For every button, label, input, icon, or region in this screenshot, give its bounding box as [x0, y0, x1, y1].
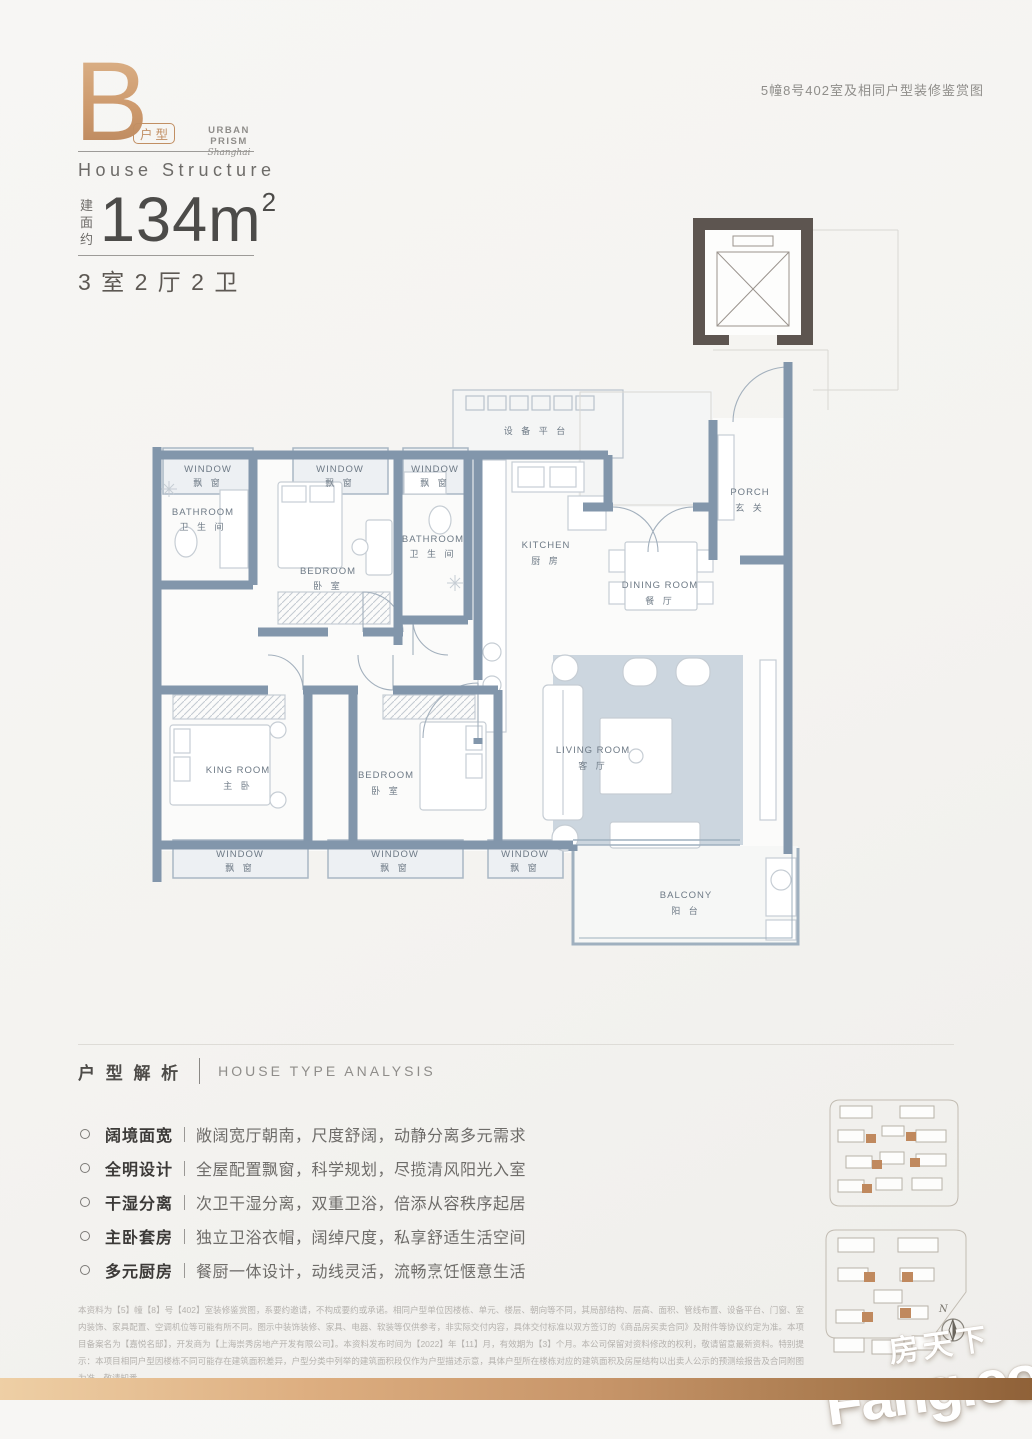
king-room-label-cn: 主 卧 — [223, 780, 253, 791]
floor-plan: 设 备 平 台 — [128, 190, 908, 980]
house-type-tag: 户型 — [133, 123, 175, 144]
window-bottom1-label-en: WINDOW — [216, 849, 264, 860]
analysis-item: 主卧套房 独立卫浴衣帽，阔绰尺度，私享舒适生活空间 — [80, 1224, 526, 1248]
analysis-item-label: 阔境面宽 — [105, 1122, 173, 1146]
analysis-item-separator — [184, 1263, 185, 1278]
window-bottom3-label-en: WINDOW — [501, 849, 549, 860]
analysis-item-desc: 次卫干湿分离，双重卫浴，倍添从容秩序起居 — [196, 1190, 526, 1214]
bullet-icon — [80, 1129, 90, 1139]
analysis-item-separator — [184, 1127, 185, 1142]
living-room-label-cn: 客 厅 — [578, 760, 608, 771]
analysis-item-separator — [184, 1195, 185, 1210]
dining-label-cn: 餐 厅 — [645, 595, 675, 606]
window-top2-label-cn: 飘 窗 — [325, 477, 355, 488]
analysis-item-label: 多元厨房 — [105, 1258, 173, 1282]
kitchen-label-en: KITCHEN — [522, 540, 571, 551]
window-bottom3-label-cn: 飘 窗 — [510, 862, 540, 873]
bullet-icon — [80, 1197, 90, 1207]
window-bottom1-label-cn: 飘 窗 — [225, 862, 255, 873]
analysis-item: 干湿分离 次卫干湿分离，双重卫浴，倍添从容秩序起居 — [80, 1190, 526, 1214]
equipment-platform-label: 设 备 平 台 — [504, 425, 569, 436]
site-plan-minimap-1 — [820, 1094, 968, 1221]
bedroom1-label-cn: 卧 室 — [313, 580, 343, 591]
window-bottom2-label-cn: 飘 窗 — [380, 862, 410, 873]
bullet-icon — [80, 1163, 90, 1173]
analysis-item: 多元厨房 餐厨一体设计，动线灵活，流畅烹饪惬意生活 — [80, 1258, 526, 1282]
porch-label-en: PORCH — [730, 487, 769, 498]
window-top2-label-en: WINDOW — [316, 464, 364, 475]
balcony-label-en: BALCONY — [660, 890, 712, 901]
analysis-header: 户 型 解 析 HOUSE TYPE ANALYSIS — [78, 1058, 436, 1084]
bedroom2-label-cn: 卧 室 — [371, 785, 401, 796]
analysis-title-en: HOUSE TYPE ANALYSIS — [218, 1063, 436, 1079]
analysis-title-divider — [199, 1058, 200, 1084]
brand-logo: URBAN PRISM Shanghai — [194, 125, 264, 158]
disclaimer-text: 本资料为【5】幢【8】号【402】室装修鉴赏图，系要约邀请，不构成要约或承诺。相… — [78, 1302, 804, 1387]
header-divider-top — [78, 151, 254, 152]
porch-label-cn: 玄 关 — [735, 502, 765, 513]
window-top3-label-en: WINDOW — [411, 464, 459, 475]
elevator — [693, 218, 813, 345]
bedroom1-label-en: BEDROOM — [300, 566, 356, 577]
top-right-note: 5幢8号402室及相同户型装修鉴赏图 — [761, 80, 984, 99]
kitchen-label-cn: 厨 房 — [531, 555, 561, 566]
analysis-item: 全明设计 全屋配置飘窗，科学规划，尽揽清风阳光入室 — [80, 1156, 526, 1180]
analysis-item-desc: 敞阔宽厅朝南，尺度舒阔，动静分离多元需求 — [196, 1122, 526, 1146]
analysis-item-label: 主卧套房 — [105, 1224, 173, 1248]
structure-title: House Structure — [78, 160, 276, 181]
window-top1-label-cn: 飘 窗 — [193, 477, 223, 488]
analysis-item-label: 全明设计 — [105, 1156, 173, 1180]
king-room-label-en: KING ROOM — [206, 765, 270, 776]
analysis-title-cn: 户 型 解 析 — [78, 1059, 181, 1084]
balcony-label-cn: 阳 台 — [671, 905, 701, 916]
compass-north-label: N — [939, 1304, 948, 1315]
bathroom1-label-en: BATHROOM — [172, 507, 234, 518]
living-room-label-en: LIVING ROOM — [556, 745, 630, 756]
floor-plan-svg: 设 备 平 台 — [128, 190, 908, 980]
bottom-gradient-bar — [0, 1378, 1032, 1400]
analysis-item-separator — [184, 1229, 185, 1244]
area-prefix: 建面约 — [80, 197, 95, 248]
bedroom2-label-en: BEDROOM — [358, 770, 414, 781]
analysis-item: 阔境面宽 敞阔宽厅朝南，尺度舒阔，动静分离多元需求 — [80, 1122, 526, 1146]
bathroom2-label-cn: 卫 生 间 — [409, 548, 456, 559]
window-top1-label-en: WINDOW — [184, 464, 232, 475]
analysis-item-desc: 独立卫浴衣帽，阔绰尺度，私享舒适生活空间 — [196, 1224, 526, 1248]
analysis-top-rule — [78, 1044, 954, 1045]
analysis-item-label: 干湿分离 — [105, 1190, 173, 1214]
bullet-icon — [80, 1265, 90, 1275]
brand-name: URBAN PRISM — [194, 125, 264, 147]
window-top3-label-cn: 飘 窗 — [420, 477, 450, 488]
bullet-icon — [80, 1231, 90, 1241]
dining-label-en: DINING ROOM — [622, 580, 698, 591]
analysis-item-separator — [184, 1161, 185, 1176]
brand-subname: Shanghai — [194, 148, 264, 158]
analysis-item-desc: 全屋配置飘窗，科学规划，尽揽清风阳光入室 — [196, 1156, 526, 1180]
window-bottom2-label-en: WINDOW — [371, 849, 419, 860]
bathroom1-label-cn: 卫 生 间 — [179, 521, 226, 532]
analysis-item-desc: 餐厨一体设计，动线灵活，流畅烹饪惬意生活 — [196, 1258, 526, 1282]
bathroom2-label-en: BATHROOM — [402, 534, 464, 545]
